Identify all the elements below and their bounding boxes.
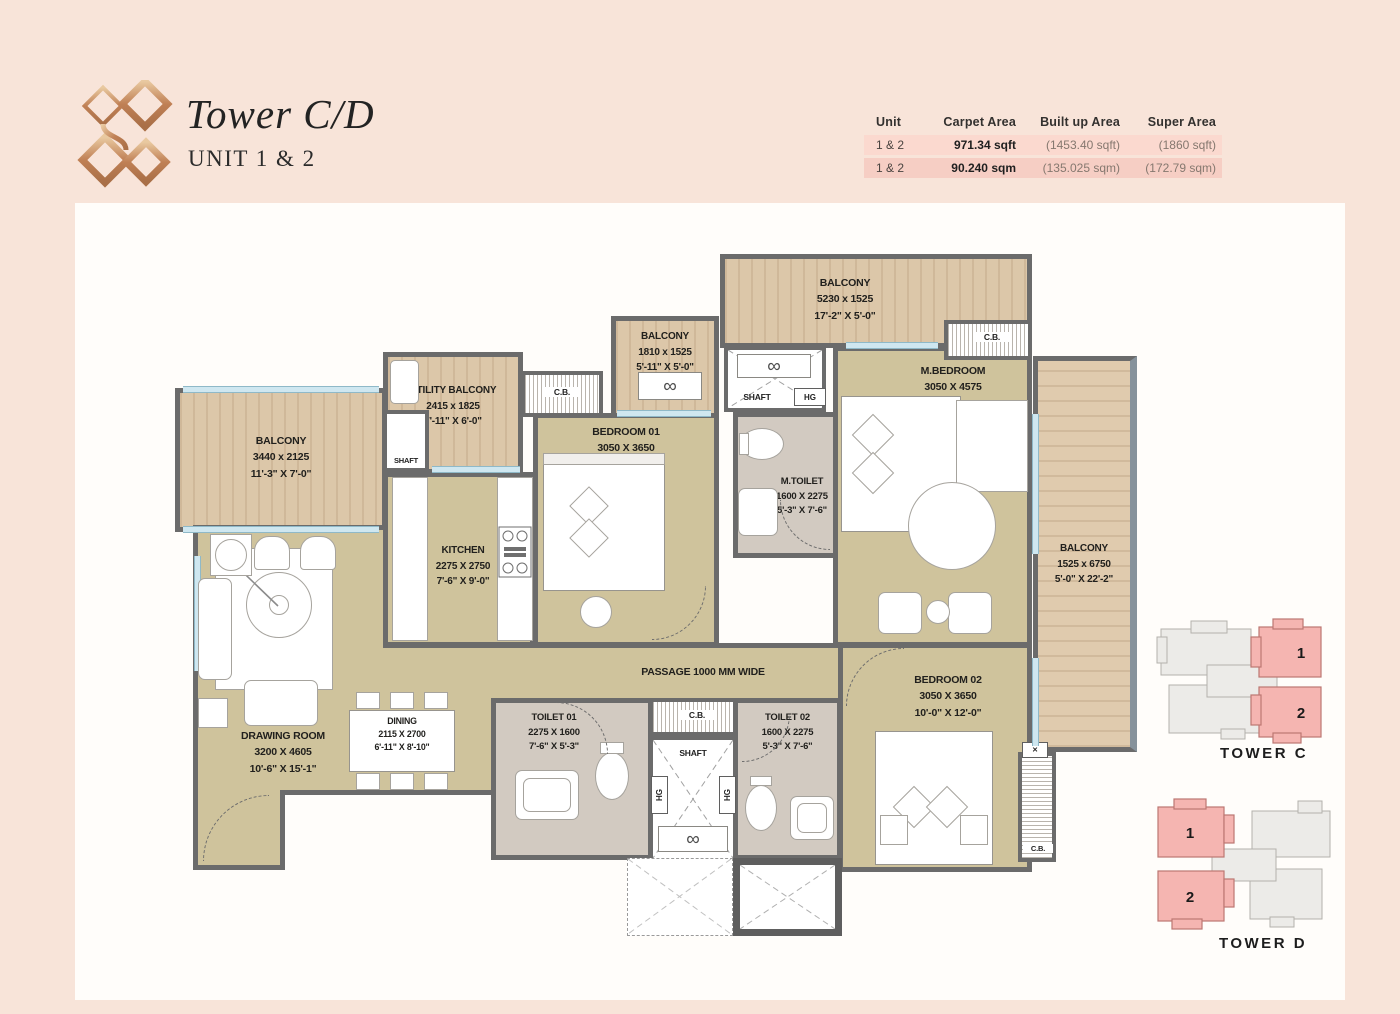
wc-toilet-01 (595, 752, 629, 800)
m-chair (948, 592, 992, 634)
lobby-fan-icon: ∞ (658, 826, 728, 852)
lift-lobby (627, 858, 733, 936)
dining-chair (424, 773, 448, 790)
cupboard-passage: C.B. (649, 698, 737, 736)
page-subtitle: UNIT 1 & 2 (188, 146, 316, 172)
bed-02-cushion (880, 815, 908, 845)
svg-text:2: 2 (1186, 889, 1194, 906)
shaft-kitchen: SHAFT (383, 410, 429, 472)
m-chair (878, 592, 922, 634)
area-table-header: Unit Carpet Area Built up Area Super Are… (864, 112, 1222, 132)
cupboard-bedroom-02: C.B. (1018, 752, 1056, 862)
armchair (254, 536, 290, 570)
hg-box-left: HG (651, 776, 668, 814)
dining-chair (356, 692, 380, 709)
window (183, 386, 379, 393)
basin-inner-01 (523, 778, 571, 812)
cupboard-mbedroom: C.B. (944, 320, 1032, 360)
kitchen-label: KITCHEN2275 X 27507'-6" X 9'-0" (418, 543, 508, 590)
svg-text:2: 2 (1297, 705, 1305, 722)
m-round-table (908, 482, 996, 570)
balcony-fan-icon: ∞ (638, 372, 702, 400)
col-builtup: Built up Area (1022, 112, 1126, 132)
area-row-sqft: 1 & 2 971.34 sqft (1453.40 sqft) (1860 s… (864, 135, 1222, 155)
utility-sink (390, 360, 419, 404)
sofa-long (198, 578, 232, 680)
room-balcony-right: BALCONY1525 x 67505'-0" X 22'-2" (1033, 356, 1137, 752)
hg-box-top: HG (794, 388, 826, 406)
room-balcony-mid: BALCONY1810 x 15255'-11" X 5'-0" (611, 316, 719, 418)
window (432, 466, 520, 473)
wc-tank-02 (750, 776, 772, 786)
balcony-mid-label: BALCONY1810 x 15255'-11" X 5'-0" (616, 329, 714, 376)
col-unit: Unit (864, 112, 922, 132)
dining-chair (390, 692, 414, 709)
dining-chair (390, 773, 414, 790)
shower-m-toilet (738, 488, 778, 536)
side-table (198, 698, 228, 728)
bedroom-01-chair (580, 596, 612, 628)
dining-chair (356, 773, 380, 790)
window (183, 526, 379, 533)
window (1032, 658, 1039, 746)
drawing-room-label: DRAWING ROOM3200 X 460510'-6" X 15'-1" (203, 728, 363, 777)
area-row-sqm: 1 & 2 90.240 sqm (135.025 sqm) (172.79 s… (864, 158, 1222, 178)
bed-01 (543, 453, 665, 591)
dining-table: DINING2115 X 27006'-11" X 8'-10" (349, 710, 455, 772)
floor-plan-page: { "header": { "brand_title": "Tower C/D"… (0, 0, 1400, 1014)
svg-text:1: 1 (1186, 825, 1194, 842)
brand-logo-icon (76, 80, 176, 188)
dining-label: DINING2115 X 27006'-11" X 8'-10" (350, 715, 454, 755)
col-super: Super Area (1126, 112, 1222, 132)
stove-icon (498, 526, 532, 578)
cupboard-utility: C.B. (521, 371, 603, 417)
balcony-top-label: BALCONY5230 x 152517'-2" X 5'-0" (725, 275, 965, 324)
tower-d-caption: TOWER D (1198, 935, 1328, 952)
m-stool (926, 600, 950, 624)
keyplan-tower-d: 1 2 (1150, 795, 1340, 933)
corner-lamp (215, 539, 247, 571)
keyplan-tower-c: 1 2 (1155, 615, 1340, 747)
kitchen-counter-left (392, 477, 428, 641)
room-balcony-left: BALCONY3440 x 212511'-3" X 7'-0" (175, 388, 387, 532)
window (846, 342, 938, 349)
window (1032, 414, 1039, 554)
entry-shaft (733, 858, 842, 936)
hg-box-right: HG (719, 776, 736, 814)
armchair (300, 536, 336, 570)
exhaust-fan-icon: ∞ (737, 354, 811, 378)
bed-01-headboard (543, 453, 665, 465)
window (617, 410, 711, 417)
wc-toilet-02 (745, 785, 777, 831)
balcony-right-label: BALCONY1525 x 67505'-0" X 22'-2" (1038, 541, 1130, 588)
basin-inner-02 (797, 803, 827, 833)
dining-chair (424, 692, 448, 709)
wc-tank-m (739, 433, 749, 455)
sofa-love (244, 680, 318, 726)
m-dresser (956, 400, 1028, 492)
balcony-left-label: BALCONY3440 x 212511'-3" X 7'-0" (180, 433, 382, 482)
page-title: Tower C/D (186, 90, 375, 138)
area-table: Unit Carpet Area Built up Area Super Are… (864, 112, 1222, 181)
col-carpet: Carpet Area (922, 112, 1022, 132)
svg-text:1: 1 (1297, 645, 1305, 662)
tower-c-caption: TOWER C (1199, 745, 1329, 762)
bed-02-cushion (960, 815, 988, 845)
